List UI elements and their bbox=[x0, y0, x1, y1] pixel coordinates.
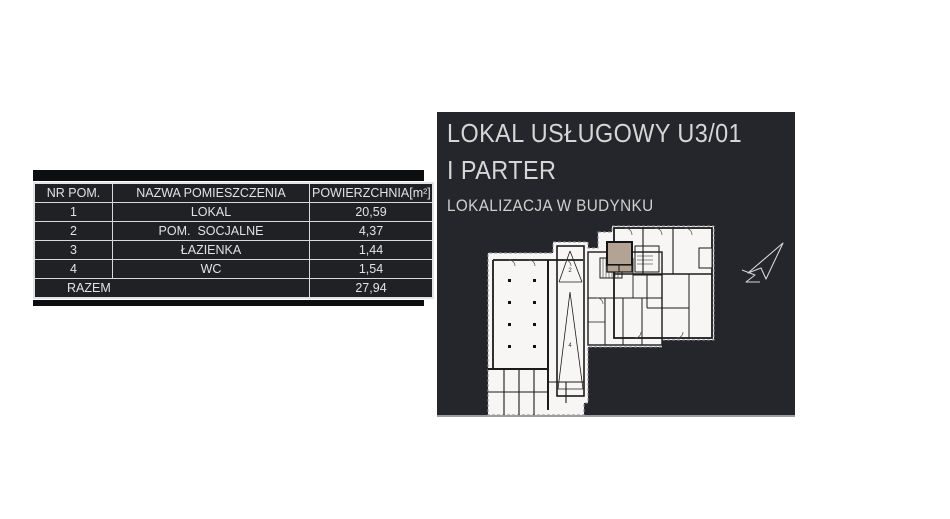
location-subtitle: LOKALIZACJA W BUDYNKU bbox=[447, 196, 742, 216]
highlighted-unit bbox=[607, 242, 632, 272]
room-name: ŁAZIENKA bbox=[113, 241, 310, 260]
table-row: 3 ŁAZIENKA 1,44 bbox=[34, 241, 433, 260]
table-row: 4 WC 1,54 bbox=[34, 260, 433, 279]
table-row: 1 LOKAL 20,59 bbox=[34, 203, 433, 222]
room-nr: 2 bbox=[34, 222, 113, 241]
header-nr-pom: NR POM. bbox=[34, 183, 113, 203]
unit-title: LOKAL USŁUGOWY U3/01 bbox=[447, 118, 742, 149]
room-nr: 4 bbox=[34, 260, 113, 279]
table-bottom-bar bbox=[33, 300, 424, 306]
area-table: NR POM. NAZWA POMIESZCZENIA POWIERZCHNIA… bbox=[33, 182, 434, 299]
building-footprint bbox=[488, 226, 714, 415]
table-row: 2 POM. SOCJALNE 4,37 bbox=[34, 222, 433, 241]
floor-title: I PARTER bbox=[447, 155, 742, 186]
room-nr: 3 bbox=[34, 241, 113, 260]
north-arrow-icon bbox=[742, 243, 783, 282]
room-area: 1,54 bbox=[310, 260, 434, 279]
area-table-block: NR POM. NAZWA POMIESZCZENIA POWIERZCHNIA… bbox=[33, 170, 424, 306]
room-area: 20,59 bbox=[310, 203, 434, 222]
panel-header: LOKAL USŁUGOWY U3/01 I PARTER LOKALIZACJ… bbox=[447, 118, 775, 216]
table-total-row: RAZEM 27,94 bbox=[34, 279, 433, 299]
room-area: 4,37 bbox=[310, 222, 434, 241]
room-nr: 1 bbox=[34, 203, 113, 222]
total-label: RAZEM bbox=[34, 279, 310, 299]
room-area: 1,44 bbox=[310, 241, 434, 260]
table-header-row: NR POM. NAZWA POMIESZCZENIA POWIERZCHNIA… bbox=[34, 183, 433, 203]
total-value: 27,94 bbox=[310, 279, 434, 299]
room-name: POM. SOCJALNE bbox=[113, 222, 310, 241]
header-powierzchnia: POWIERZCHNIA[m²] bbox=[310, 183, 434, 203]
room-name: WC bbox=[113, 260, 310, 279]
page: NR POM. NAZWA POMIESZCZENIA POWIERZCHNIA… bbox=[0, 0, 950, 519]
table-top-bar bbox=[33, 170, 424, 181]
header-nazwa: NAZWA POMIESZCZENIA bbox=[113, 183, 310, 203]
room-name: LOKAL bbox=[113, 203, 310, 222]
location-panel: LOKAL USŁUGOWY U3/01 I PARTER LOKALIZACJ… bbox=[437, 112, 795, 417]
